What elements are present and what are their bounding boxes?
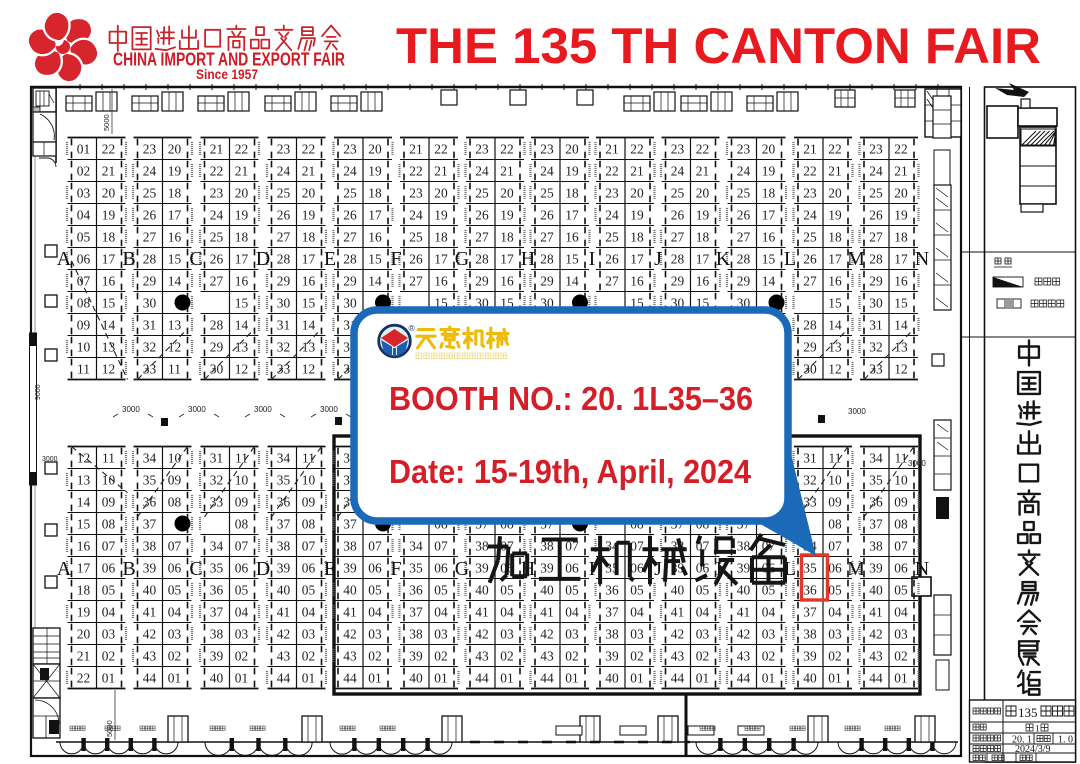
svg-text:®: ® xyxy=(409,323,416,333)
svg-text:3000: 3000 xyxy=(320,405,338,414)
svg-text:9000: 9000 xyxy=(35,384,42,400)
svg-text:Date: 15-19th, April, 2024: Date: 15-19th, April, 2024 xyxy=(389,454,751,491)
svg-text:5000: 5000 xyxy=(102,114,111,131)
svg-text:1. 0: 1. 0 xyxy=(1058,735,1073,746)
svg-text:3000: 3000 xyxy=(188,405,206,414)
svg-text:THE 135 TH CANTON FAIR: THE 135 TH CANTON FAIR xyxy=(396,18,1041,74)
svg-text:Since 1957: Since 1957 xyxy=(196,67,258,82)
svg-text:3000: 3000 xyxy=(254,405,272,414)
svg-text:2024/3/9: 2024/3/9 xyxy=(1015,744,1051,755)
svg-text:3000: 3000 xyxy=(122,405,140,414)
svg-text:3000: 3000 xyxy=(908,459,926,468)
svg-text:135: 135 xyxy=(1018,705,1038,720)
svg-text:1: 1 xyxy=(1035,724,1040,734)
svg-text:BOOTH NO.: 20. 1L35–36: BOOTH NO.: 20. 1L35–36 xyxy=(389,381,753,418)
svg-text:3000: 3000 xyxy=(42,456,58,463)
svg-text:3000: 3000 xyxy=(848,407,866,416)
